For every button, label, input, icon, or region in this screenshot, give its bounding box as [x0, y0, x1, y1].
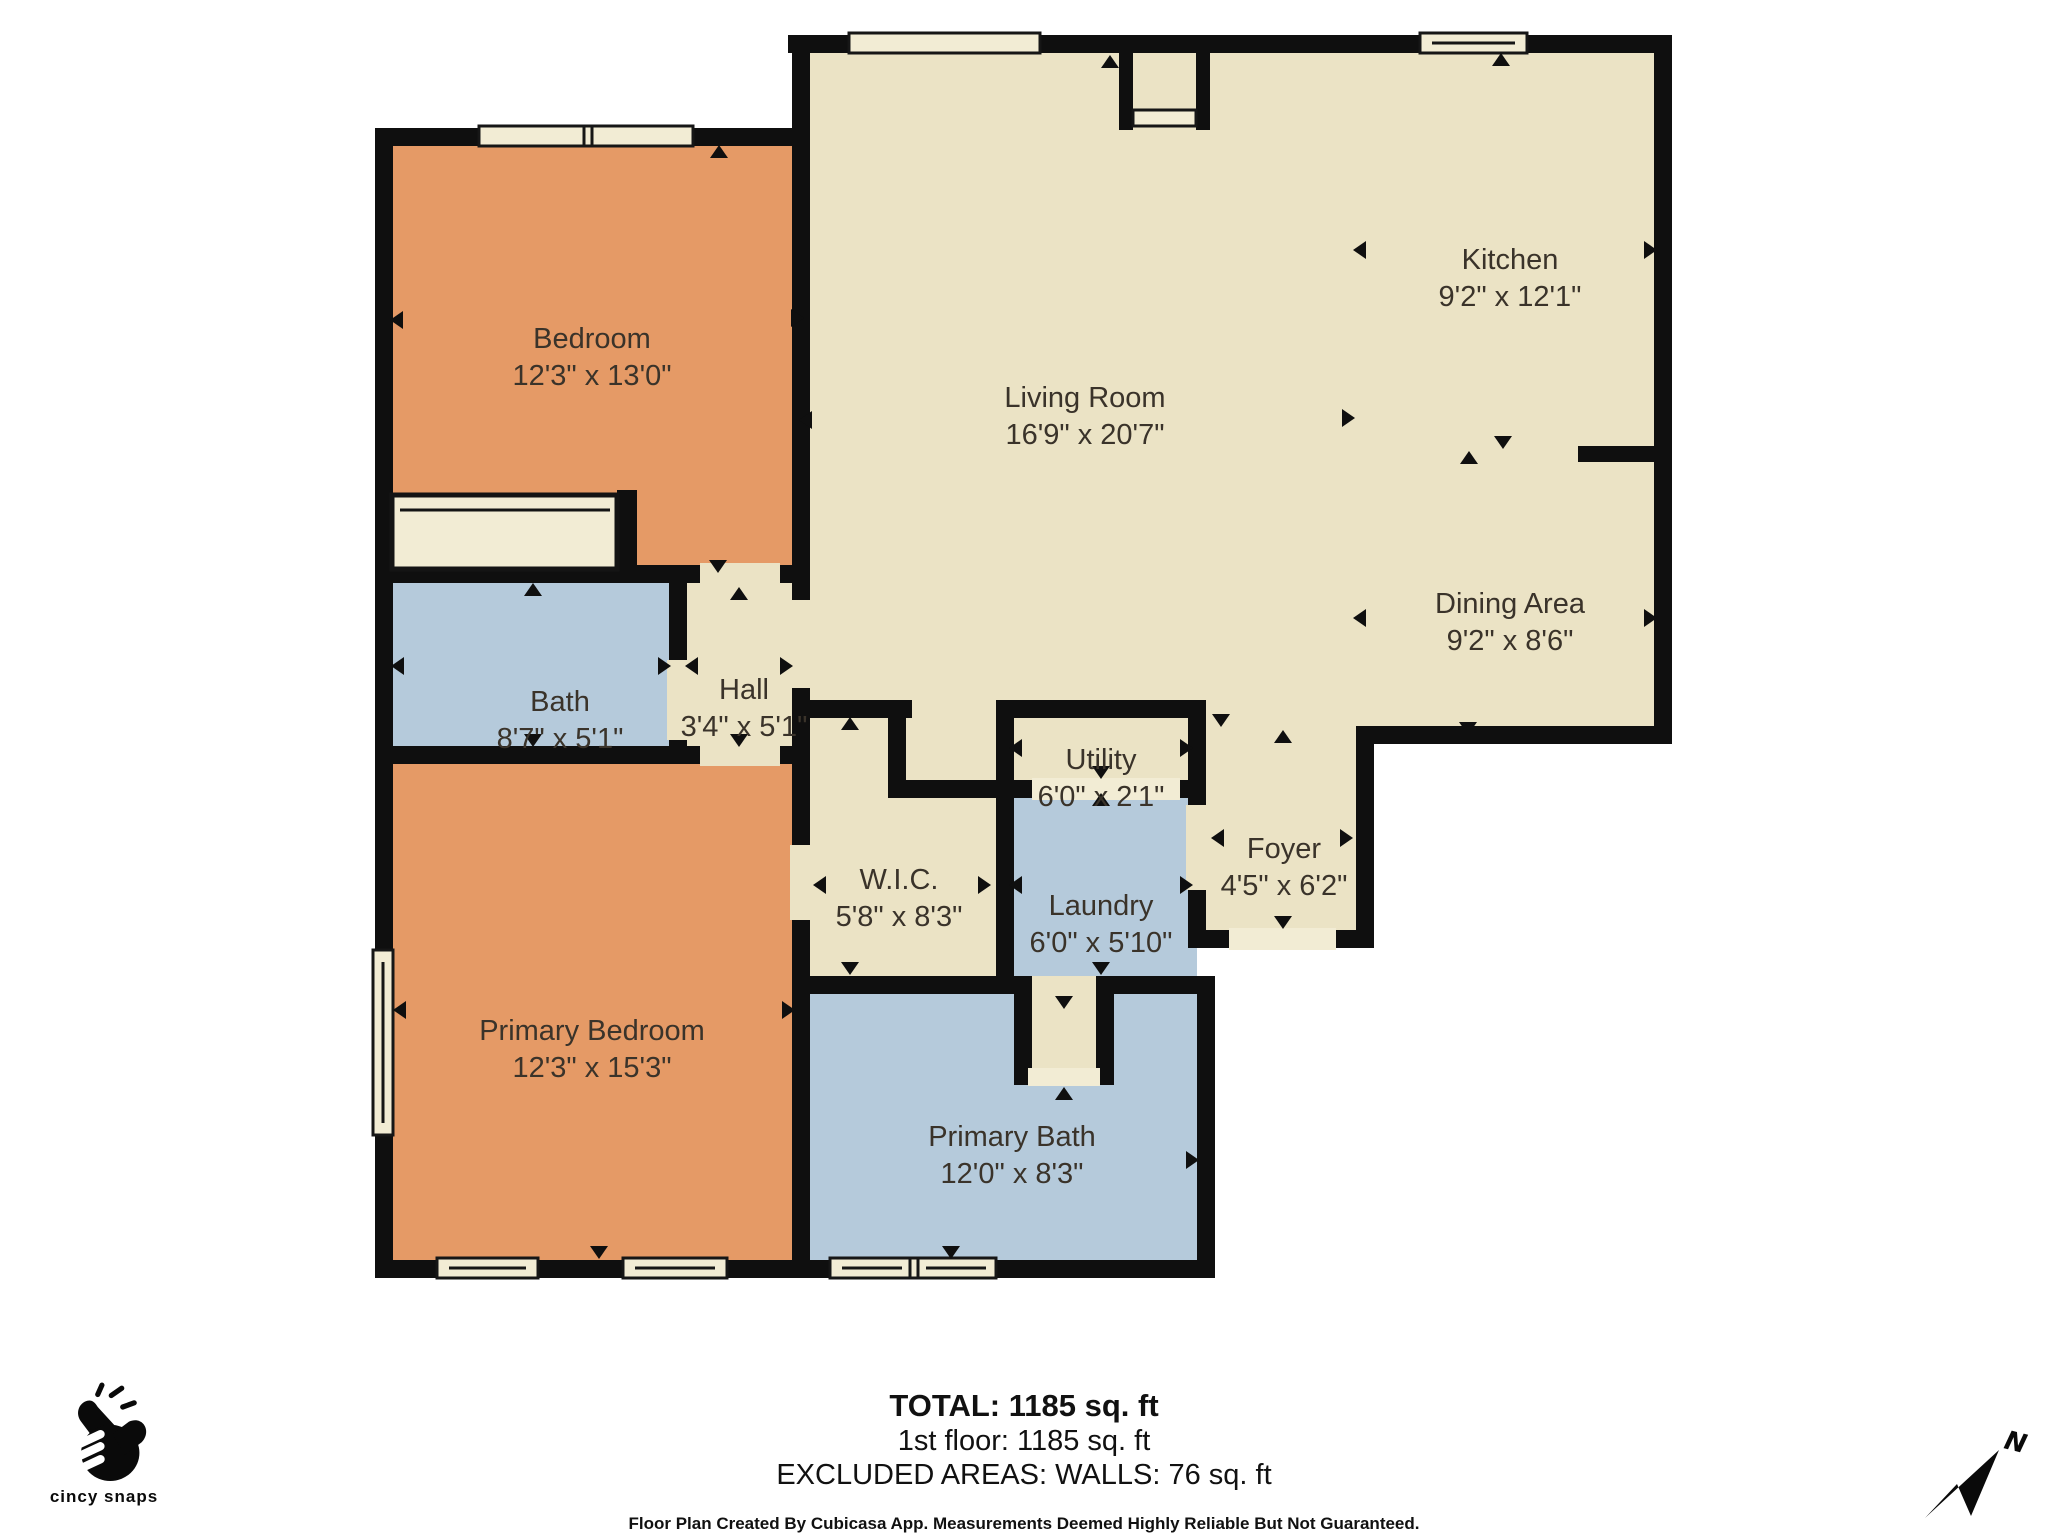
window-niche [1133, 110, 1196, 126]
snapping-hand-icon [49, 1382, 159, 1482]
bedroom-closet [392, 495, 617, 569]
room-label-primary-bath: Primary Bath 12'0" x 8'3" [928, 1119, 1096, 1193]
room-label-wic: W.I.C. 5'8" x 8'3" [836, 862, 963, 936]
room-dims: 6'0" x 5'10" [1030, 925, 1173, 962]
room-dims: 12'3" x 15'3" [479, 1050, 705, 1087]
room-name: Living Room [1004, 382, 1165, 414]
room-label-utility: Utility 6'0" x 2'1" [1038, 742, 1165, 816]
room-name: Dining Area [1435, 588, 1585, 620]
room-dims: 4'5" x 6'2" [1221, 868, 1348, 905]
room-dims: 12'3" x 13'0" [512, 358, 671, 395]
room-label-kitchen: Kitchen 9'2" x 12'1" [1439, 242, 1582, 316]
window-bedroom-top [479, 126, 693, 146]
room-name: Kitchen [1462, 244, 1559, 276]
room-label-laundry: Laundry 6'0" x 5'10" [1030, 888, 1173, 962]
room-dims: 8'7" x 5'1" [497, 721, 624, 758]
floor-plan-drawing [0, 0, 2048, 1536]
room-label-primary-bedroom: Primary Bedroom 12'3" x 15'3" [479, 1013, 705, 1087]
logo: cincy snaps [44, 1382, 164, 1507]
room-dims: 16'9" x 20'7" [1004, 417, 1165, 454]
room-name: W.I.C. [860, 864, 939, 896]
logo-text: cincy snaps [44, 1487, 164, 1507]
floor-plan-page: Bedroom 12'3" x 13'0" Living Room 16'9" … [0, 0, 2048, 1536]
total-area-text: TOTAL: 1185 sq. ft [0, 1388, 2048, 1424]
window-living-top [849, 33, 1040, 53]
room-label-hall: Hall 3'4" x 5'1" [681, 672, 808, 746]
room-dims: 12'0" x 8'3" [928, 1156, 1096, 1193]
room-name: Utility [1066, 744, 1137, 776]
north-arrow-icon: N [1915, 1420, 2035, 1536]
room-name: Bath [530, 686, 590, 718]
room-label-dining-area: Dining Area 9'2" x 8'6" [1435, 586, 1585, 660]
room-dims: 9'2" x 8'6" [1435, 623, 1585, 660]
room-name: Foyer [1247, 833, 1321, 865]
north-compass: N [1915, 1420, 2035, 1536]
room-label-living-room: Living Room 16'9" x 20'7" [1004, 380, 1165, 454]
room-primary-bedroom [384, 755, 801, 1269]
room-name: Primary Bedroom [479, 1015, 705, 1047]
room-name: Bedroom [533, 323, 651, 355]
room-dims: 9'2" x 12'1" [1439, 279, 1582, 316]
room-dims: 6'0" x 2'1" [1038, 779, 1165, 816]
room-dims: 5'8" x 8'3" [836, 899, 963, 936]
room-name: Laundry [1049, 890, 1154, 922]
disclaimer-text: Floor Plan Created By Cubicasa App. Meas… [0, 1514, 2048, 1534]
north-label: N [2001, 1426, 2030, 1460]
room-label-bath: Bath 8'7" x 5'1" [497, 684, 624, 758]
summary-block: TOTAL: 1185 sq. ft 1st floor: 1185 sq. f… [0, 1388, 2048, 1534]
room-name: Primary Bath [928, 1121, 1096, 1153]
room-dims: 3'4" x 5'1" [681, 709, 808, 746]
room-name: Hall [719, 674, 769, 706]
excluded-areas-text: EXCLUDED AREAS: WALLS: 76 sq. ft [0, 1458, 2048, 1492]
room-label-foyer: Foyer 4'5" x 6'2" [1221, 831, 1348, 905]
room-label-bedroom: Bedroom 12'3" x 13'0" [512, 321, 671, 395]
floor-area-text: 1st floor: 1185 sq. ft [0, 1424, 2048, 1458]
